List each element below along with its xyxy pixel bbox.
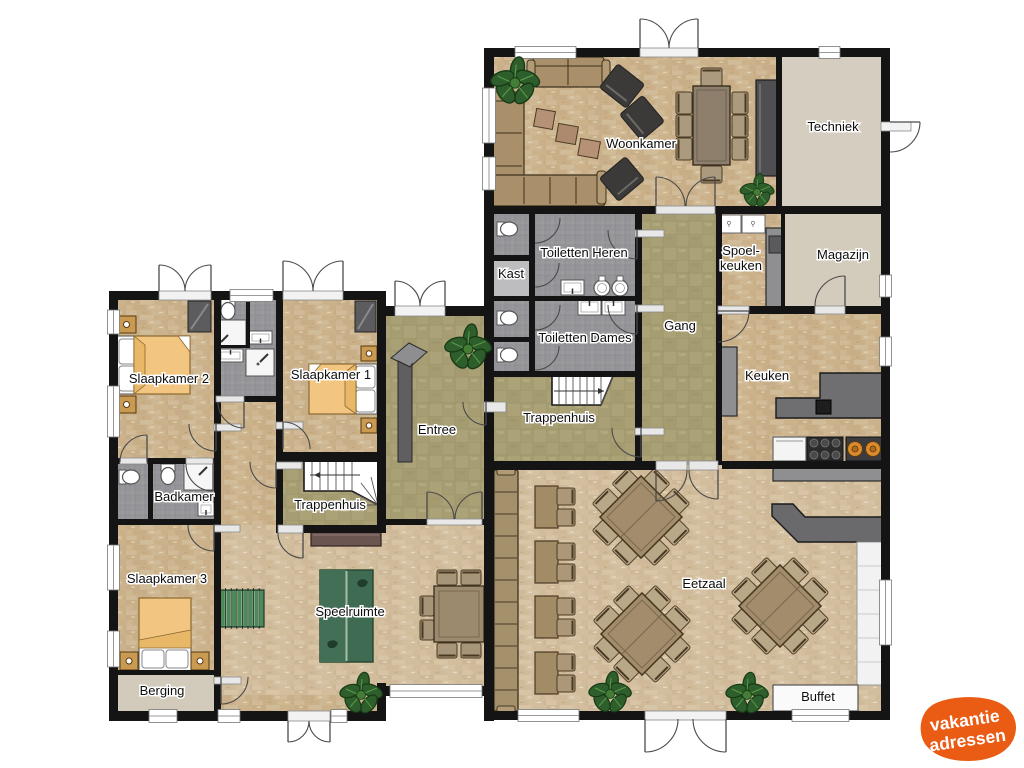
svg-text:Kast: Kast (498, 266, 524, 281)
svg-text:Slaapkamer 3: Slaapkamer 3 (127, 571, 207, 586)
svg-text:Slaapkamer 1: Slaapkamer 1 (291, 367, 371, 382)
svg-text:Trappenhuis: Trappenhuis (294, 497, 366, 512)
svg-text:Trappenhuis: Trappenhuis (523, 410, 595, 425)
svg-text:Spoel-: Spoel- (722, 243, 760, 258)
svg-text:Toiletten Dames: Toiletten Dames (538, 330, 632, 345)
svg-text:Entree: Entree (418, 422, 456, 437)
svg-text:Toiletten Heren: Toiletten Heren (540, 245, 627, 260)
svg-text:Berging: Berging (140, 683, 185, 698)
svg-text:Eetzaal: Eetzaal (682, 576, 725, 591)
svg-text:Woonkamer: Woonkamer (606, 136, 677, 151)
svg-text:Speelruimte: Speelruimte (315, 604, 384, 619)
svg-text:⚲: ⚲ (750, 220, 755, 228)
svg-text:Techniek: Techniek (807, 119, 859, 134)
svg-text:keuken: keuken (720, 258, 762, 273)
svg-text:Keuken: Keuken (745, 368, 789, 383)
svg-text:Gang: Gang (664, 318, 696, 333)
svg-text:Badkamer: Badkamer (154, 489, 214, 504)
svg-text:Buffet: Buffet (801, 689, 835, 704)
svg-text:⚲: ⚲ (726, 220, 731, 228)
svg-text:Slaapkamer 2: Slaapkamer 2 (129, 371, 209, 386)
svg-text:Magazijn: Magazijn (817, 247, 869, 262)
